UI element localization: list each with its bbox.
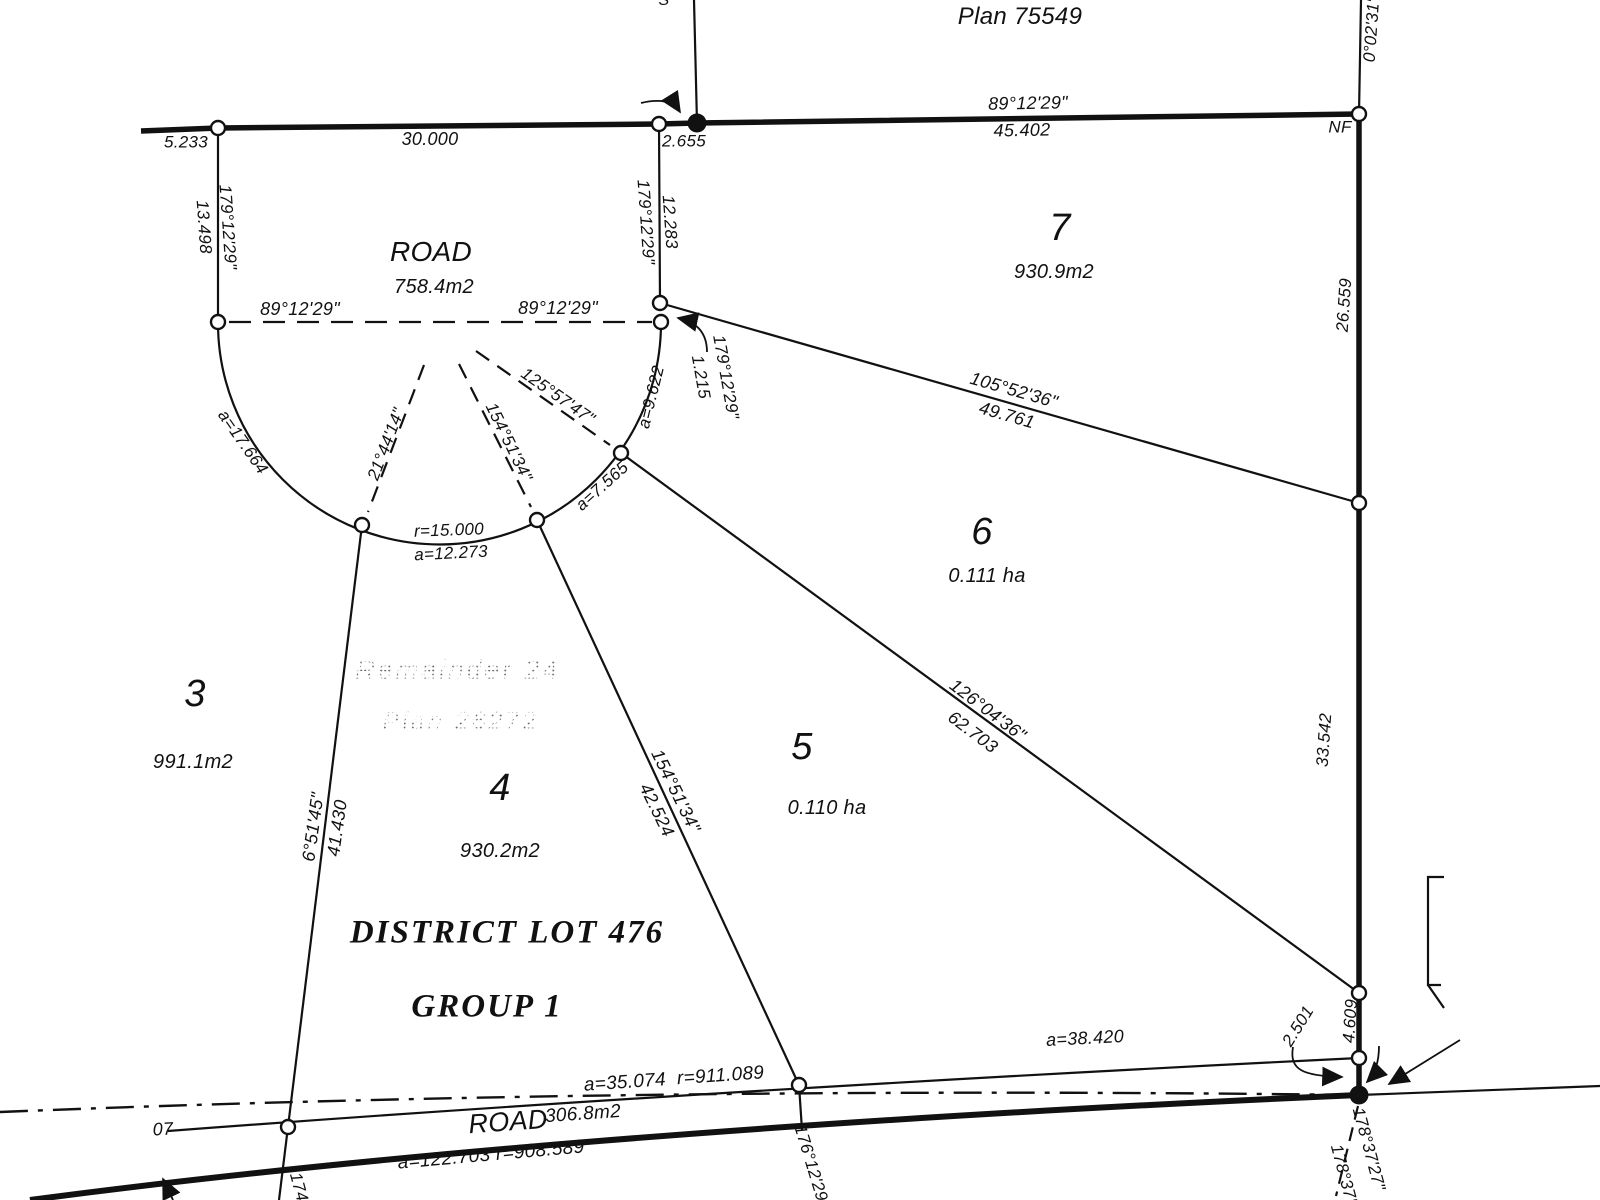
remainder-plan-label: Plan 26272: [383, 710, 540, 735]
leader-arrow-corner: [1367, 1046, 1379, 1082]
lot-6-area: 0.111 ha: [948, 566, 1025, 586]
lot-7-number: 7: [1049, 209, 1070, 247]
bulb-radius-15000: r=15.000: [414, 520, 485, 539]
road-bulb-area: 758.4m2: [394, 277, 474, 297]
lot-4-area: 930.2m2: [460, 841, 540, 861]
heavy-boundary-lines: [30, 114, 1359, 1200]
south-arc-38420: a=38.420: [1046, 1027, 1125, 1049]
group-label: GROUP 1: [411, 991, 562, 1024]
leader-arrow-top: [641, 101, 680, 112]
west-stub-dist-13498: 13.498: [194, 200, 215, 255]
north-dist-45402: 45.402: [993, 121, 1050, 140]
lot-5-number: 5: [791, 728, 812, 766]
road-bulb-name: ROAD: [390, 238, 472, 266]
partial-top-glyph: S: [659, 0, 670, 9]
bulb-bearing-89-right: 89°12'29": [518, 299, 598, 317]
leader-arrow-long: [1389, 1040, 1460, 1084]
bulb-bearing-89-left: 89°12'29": [260, 300, 340, 318]
south-partial-dist-07: 07: [152, 1119, 174, 1138]
north-dist-30000: 30.000: [402, 130, 459, 148]
district-lot-label: DISTRICT LOT 476: [350, 917, 664, 950]
north-dist-2655: 2.655: [662, 133, 706, 150]
survey-plan-sheet: Plan 75549 S 89°12'29" 45.402 NF 5.233 3…: [0, 0, 1600, 1200]
survey-linework: [0, 0, 1600, 1200]
center-stub-dist-12283: 12.283: [660, 195, 681, 250]
adjacent-plan-label: Plan 75549: [958, 5, 1082, 29]
lot-7-area: 930.9m2: [1014, 262, 1094, 282]
road-south-area: 306.8m2: [544, 1102, 621, 1126]
road-south-name: ROAD: [468, 1106, 549, 1138]
lot-3-number: 3: [184, 675, 205, 713]
lot-6-number: 6: [971, 513, 992, 551]
nf-monument-label: NF: [1328, 119, 1351, 136]
east-dist-4609: 4.609: [1340, 998, 1360, 1043]
remainder-label: Remainder 24: [355, 657, 561, 684]
thin-lot-lines: [168, 0, 1600, 1200]
adjacent-parcel-fragment: [1428, 877, 1444, 1008]
leader-arrow-bulb: [678, 318, 707, 352]
leader-arrows: [163, 101, 1460, 1200]
north-dist-5233: 5.233: [164, 134, 208, 151]
east-dist-26559: 26.559: [1334, 278, 1355, 333]
lot-5-area: 0.110 ha: [788, 798, 867, 818]
north-bearing-label: 89°12'29": [988, 93, 1068, 112]
lot-3-area: 991.1m2: [153, 752, 233, 772]
lot-4-number: 4: [489, 769, 510, 807]
bulb-arc-12273: a=12.273: [414, 543, 489, 564]
east-dist-33542: 33.542: [1314, 713, 1335, 768]
monument-markers: [211, 107, 1366, 1134]
